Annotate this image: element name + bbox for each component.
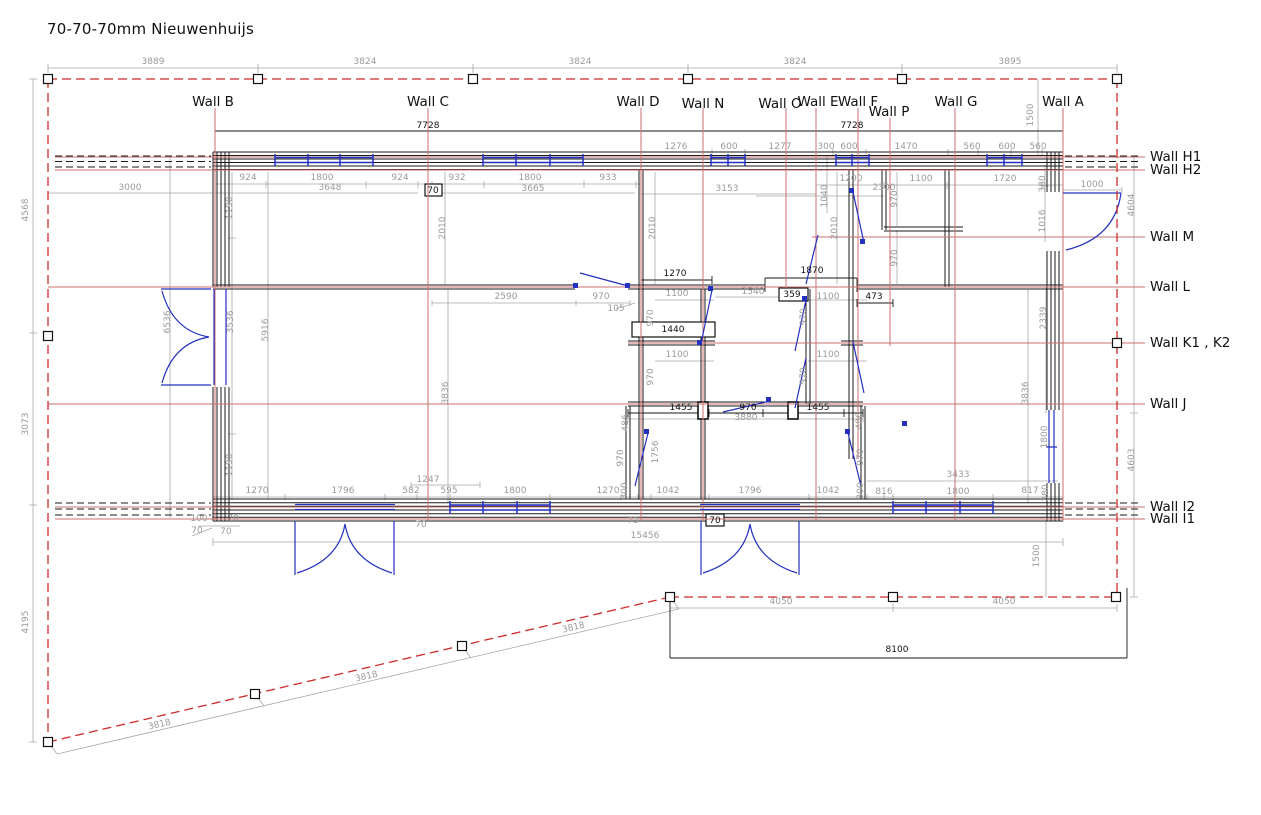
double-door-bottom-right [701, 521, 799, 575]
dimension-label: 970 [739, 403, 756, 413]
dimension-label: 970 [890, 249, 900, 266]
dimension-label: 1455 [807, 403, 830, 413]
dimension-label: 5916 [261, 318, 271, 341]
dimension-label: 359 [783, 290, 800, 300]
dimension-label: 3824 [569, 57, 592, 67]
dimension-label: 7728 [841, 121, 864, 131]
dimension-label: 3073 [21, 413, 31, 436]
site-boundary [48, 79, 1117, 742]
dimension-label: 1720 [994, 174, 1017, 184]
dimension-label: 2010 [648, 216, 658, 239]
wall-axis-label: Wall C [407, 94, 449, 110]
dimension-label: 970 [646, 309, 656, 326]
wall-axis-label: Wall N [682, 96, 725, 112]
dimension-label: 486 [621, 414, 631, 431]
dimension-label: 300 [620, 482, 630, 499]
dimension-label: 970 [890, 190, 900, 207]
dimension-label: 1270 [597, 486, 620, 496]
wall-axis-label: Wall K1 , K2 [1150, 335, 1230, 351]
door-post [788, 402, 798, 419]
dimension-label: 3836 [441, 381, 451, 404]
wall-axis-label: Wall J [1150, 396, 1187, 412]
dimension-label: 970 [856, 448, 866, 465]
boundary-markers [44, 75, 1122, 747]
dimension-label: 1100 [666, 289, 689, 299]
dimension-label: 1000 [1081, 180, 1104, 190]
dimension-label: 1796 [739, 486, 762, 496]
dimension-label: 4568 [21, 198, 31, 221]
dimension-label: 600 [840, 142, 857, 152]
dimension-label: 1800 [519, 173, 542, 183]
dimension-label: 1470 [895, 142, 918, 152]
dimension-label: 1042 [657, 486, 680, 496]
dimension-label: 2010 [830, 216, 840, 239]
dimension-label: 3818 [354, 670, 379, 685]
dimension-label: 1100 [817, 292, 840, 302]
dimension-label: 1247 [417, 475, 440, 485]
dimension-label: 970 [799, 367, 809, 384]
dimension-label: 70 [709, 516, 721, 526]
dimension-label: 1100 [666, 350, 689, 360]
dimension-label: 1800 [504, 486, 527, 496]
dimension-label: 486 [855, 412, 865, 429]
dimension-label: 816 [875, 487, 892, 497]
dimension-label: 4195 [21, 611, 31, 634]
dimension-label: 560 [1029, 142, 1046, 152]
dimension-label: 300 [856, 482, 866, 499]
dimension-label: 100 [190, 514, 207, 524]
dimension-label: 70 [220, 527, 232, 537]
dimension-label: 105 [607, 304, 624, 314]
dimension-label: 15456 [631, 531, 660, 541]
dimension-label: 380 [1038, 175, 1048, 192]
dimension-label: 1800 [311, 173, 334, 183]
dimension-label: 1440 [662, 325, 685, 335]
dimension-label: 924 [391, 173, 408, 183]
dimension-lines [29, 64, 1138, 754]
labels: 3889382438243824389577287728127660012773… [21, 57, 1230, 732]
dimension-label: 2010 [438, 216, 448, 239]
interior-door-leaves [580, 192, 864, 486]
dimension-label: 1500 [1026, 103, 1036, 126]
dimension-label: 1040 [820, 184, 830, 207]
dimension-label: 932 [448, 173, 465, 183]
dimension-label: 3648 [319, 183, 342, 193]
dimension-label: 1276 [665, 142, 688, 152]
dimension-label: 3824 [784, 57, 807, 67]
dimension-label: 300 [817, 142, 834, 152]
dimension-label: 70 [191, 526, 203, 536]
door-top-right [1063, 193, 1121, 250]
dimension-label: 1277 [769, 142, 792, 152]
dimension-label: 2590 [495, 292, 518, 302]
wall-axis-label: Wall O [758, 96, 801, 112]
dimension-label: 8100 [886, 645, 909, 655]
wall-axis-label: Wall M [1150, 229, 1194, 245]
dimension-label: 3153 [716, 184, 739, 194]
dimension-label: 1200 [840, 174, 863, 184]
double-door-left-wall [161, 289, 226, 385]
building-walls [55, 131, 1140, 658]
dimension-label: 560 [963, 142, 980, 152]
dimension-label: 1042 [817, 486, 840, 496]
dimension-label: 582 [402, 486, 419, 496]
dimension-label: 1800 [1040, 425, 1050, 448]
dimension-label: 1270 [664, 269, 687, 279]
wall-axis-label: Wall L [1150, 279, 1191, 295]
wall-axis-label: Wall E [797, 94, 838, 110]
wall-axis-label: Wall I1 [1150, 511, 1195, 527]
dimension-label: 600 [720, 142, 737, 152]
wall-axis-label: Wall H2 [1150, 162, 1201, 178]
dimension-label: 817 [1021, 486, 1038, 496]
dimension-label: 1455 [670, 403, 693, 413]
dimension-label: 75 [627, 516, 638, 526]
dimension-label: 3895 [999, 57, 1022, 67]
dimension-label: 1190 [225, 453, 235, 476]
dimension-label: 1756 [651, 440, 661, 463]
dimension-label: 3665 [522, 184, 545, 194]
dimension-label: 4604 [1127, 193, 1137, 216]
dimension-label: 1100 [910, 174, 933, 184]
wall-axis-label: Wall D [617, 94, 660, 110]
dimension-label: 4050 [993, 597, 1016, 607]
wall-axis-label: Wall A [1042, 94, 1085, 110]
wall-axis-label: Wall P [869, 104, 910, 120]
dimension-label: 1870 [801, 266, 824, 276]
dimension-label: 600 [998, 142, 1015, 152]
dimension-label: 380 [1041, 484, 1051, 501]
dimension-label: 7728 [417, 121, 440, 131]
dimension-label: 3433 [947, 470, 970, 480]
dimension-label: 924 [239, 173, 256, 183]
dimension-label: 2339 [1039, 306, 1049, 329]
dimension-label: 1800 [947, 487, 970, 497]
dimension-label: 1540 [742, 287, 765, 297]
dimension-label: 1100 [817, 350, 840, 360]
dimension-label: 3889 [142, 57, 165, 67]
dimension-label: 4050 [770, 597, 793, 607]
dimension-label: 970 [616, 449, 626, 466]
dimension-label: 970 [592, 292, 609, 302]
dimension-label: 3824 [354, 57, 377, 67]
dimension-label: 473 [865, 292, 882, 302]
dimension-label: 4603 [1127, 449, 1137, 472]
dimension-label: 933 [599, 173, 616, 183]
dimension-label: 595 [440, 486, 457, 496]
dimension-label: 3880 [735, 413, 758, 423]
dimension-label: 1270 [246, 486, 269, 496]
dimension-label: 70 [427, 186, 439, 196]
dimension-label: 70 [415, 520, 427, 530]
dimension-label: 1796 [332, 486, 355, 496]
dimension-label: 3836 [1021, 381, 1031, 404]
dimension-label: 970 [646, 368, 656, 385]
wall-axis-label: Wall G [934, 94, 977, 110]
dimension-label: 970 [799, 308, 809, 325]
dimension-label: 3000 [119, 183, 142, 193]
double-door-bottom-left [295, 521, 394, 575]
dimension-label: 3536 [226, 310, 236, 333]
floorplan-page: 70-70-70mm Nieuwenhuijs [0, 0, 1261, 815]
floorplan-canvas: 3889382438243824389577287728127660012773… [0, 0, 1261, 815]
dimension-label: 6536 [163, 310, 173, 333]
wall-axis-label: Wall B [192, 94, 234, 110]
dimension-label: 70 [227, 514, 239, 524]
dimension-label: 1500 [1032, 544, 1042, 567]
dimension-label: 1190 [225, 196, 235, 219]
dimension-label: 1016 [1038, 209, 1048, 232]
